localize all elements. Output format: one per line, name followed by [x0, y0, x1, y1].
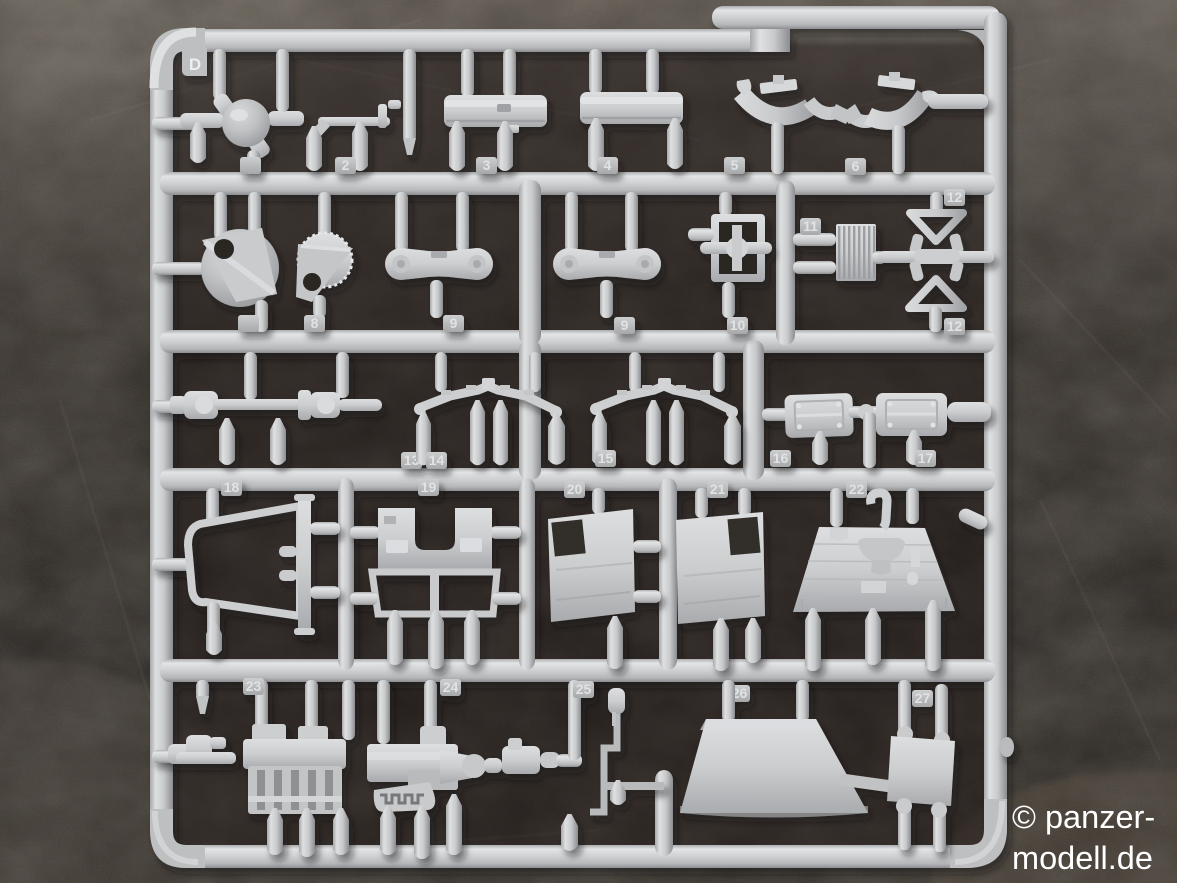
svg-text:D: D: [189, 55, 201, 74]
svg-text:2: 2: [342, 157, 350, 173]
svg-text:5: 5: [731, 157, 739, 173]
svg-text:9: 9: [450, 315, 458, 331]
svg-text:15: 15: [598, 450, 614, 466]
svg-text:4: 4: [604, 157, 612, 173]
svg-text:17: 17: [918, 450, 934, 466]
svg-text:16: 16: [773, 450, 789, 466]
svg-text:modell.de: modell.de: [1012, 840, 1153, 876]
svg-text:27: 27: [915, 690, 931, 706]
svg-text:8: 8: [311, 315, 319, 331]
svg-text:12: 12: [947, 189, 963, 205]
svg-text:11: 11: [803, 218, 818, 234]
svg-text:21: 21: [710, 481, 726, 497]
svg-text:9: 9: [621, 317, 629, 333]
svg-text:22: 22: [849, 481, 865, 497]
svg-text:18: 18: [224, 479, 240, 495]
svg-text:© panzer-: © panzer-: [1012, 799, 1155, 835]
svg-text:6: 6: [852, 158, 860, 174]
svg-text:23: 23: [246, 678, 262, 694]
svg-text:14: 14: [429, 452, 445, 468]
svg-text:3: 3: [483, 157, 491, 173]
svg-text:24: 24: [443, 679, 459, 695]
svg-text:12: 12: [947, 318, 963, 334]
svg-text:25: 25: [576, 681, 592, 697]
svg-text:20: 20: [567, 481, 583, 497]
svg-text:19: 19: [421, 479, 437, 495]
svg-text:10: 10: [730, 317, 746, 333]
